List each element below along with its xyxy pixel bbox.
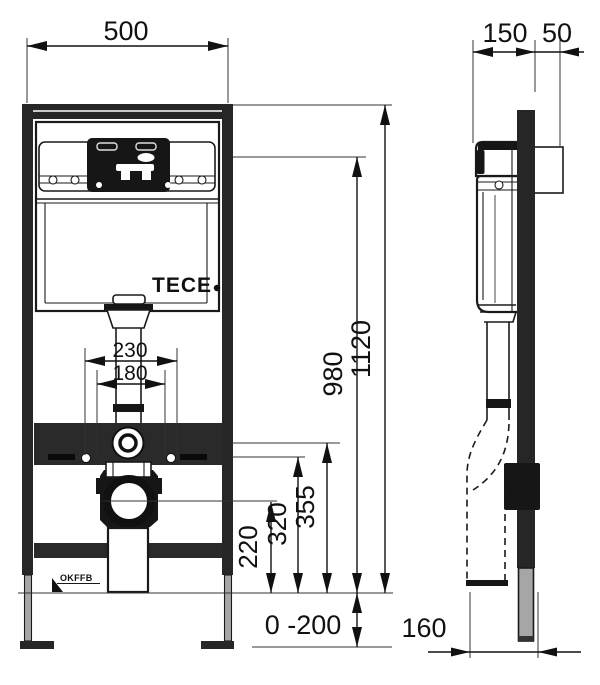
arrowhead: [560, 48, 579, 57]
floor-marker-label: OKFFB: [60, 573, 93, 583]
flush-pipe-coupling: [113, 404, 144, 412]
bracket-slot-left: [48, 454, 75, 460]
bracket-fixing-hole-left: [82, 454, 91, 463]
dimension-feet-range: 0 -200: [265, 593, 357, 647]
rail-hole: [198, 176, 206, 184]
dim-label-980: 980: [318, 351, 348, 396]
frame-right-upright: [222, 104, 233, 575]
tece-logo: TECE: [152, 274, 212, 297]
rail-hole: [49, 176, 57, 184]
outlet-down-pipe: [108, 528, 148, 592]
flush-valve-cone: [107, 310, 150, 328]
outlet-elbow-front-dashed: [467, 420, 487, 582]
arrowhead: [538, 648, 557, 657]
flush-valve-flange: [104, 304, 153, 310]
actuator-connector-leg: [121, 171, 130, 180]
side-pipe-coupling: [486, 399, 511, 408]
flush-valve-dome: [113, 295, 145, 304]
rail-hole: [175, 176, 183, 184]
dimension-outlet-160: 160: [401, 592, 581, 658]
side-actuator-front-face: [477, 150, 485, 174]
actuator-oval: [138, 153, 155, 162]
right-foot-plate: [201, 641, 234, 649]
dim-label-320: 320: [262, 502, 292, 545]
dim-label-355: 355: [290, 485, 320, 528]
dim-label-230: 230: [112, 339, 147, 362]
bracket-center-hole-inner: [120, 435, 136, 451]
bracket-fixing-hole-right: [167, 454, 176, 463]
technical-drawing-page: TECE OKFFB: [0, 0, 600, 685]
side-adjustable-foot: [519, 568, 534, 641]
actuator-dot: [96, 182, 102, 188]
dimension-width-500: 500: [27, 16, 228, 103]
side-view: [466, 110, 563, 641]
arrowhead: [451, 648, 470, 657]
dim-label-150: 150: [482, 18, 527, 48]
side-actuator-top-band: [478, 142, 517, 150]
outlet-elbow-socket: [466, 580, 508, 586]
actuator-connector-bar: [116, 164, 154, 171]
frame-left-upright: [22, 104, 33, 575]
actuator-dot: [165, 182, 171, 188]
arrowhead: [516, 48, 535, 57]
side-rail-bracket-block: [504, 463, 540, 510]
dim-label-50: 50: [542, 18, 572, 48]
right-adjustable-foot: [225, 575, 232, 641]
wc-module-drawing: TECE OKFFB: [0, 0, 600, 685]
dim-label-500: 500: [103, 16, 148, 46]
tece-logo-dot-icon: [214, 285, 220, 291]
side-cistern-taper: [480, 312, 516, 322]
dim-label-220: 220: [233, 525, 263, 568]
left-foot-plate: [20, 641, 54, 649]
dim-label-1120: 1120: [346, 320, 376, 378]
dim-label-0-200: 0 -200: [265, 610, 342, 640]
dim-label-160: 160: [401, 613, 446, 643]
side-foot-tip: [519, 636, 534, 641]
actuator-connector-leg: [142, 171, 151, 180]
side-cistern-knob: [495, 181, 503, 189]
rail-hole: [71, 176, 79, 184]
left-adjustable-foot: [25, 575, 32, 641]
dim-label-180: 180: [112, 362, 147, 385]
bracket-slot-right: [180, 454, 207, 460]
